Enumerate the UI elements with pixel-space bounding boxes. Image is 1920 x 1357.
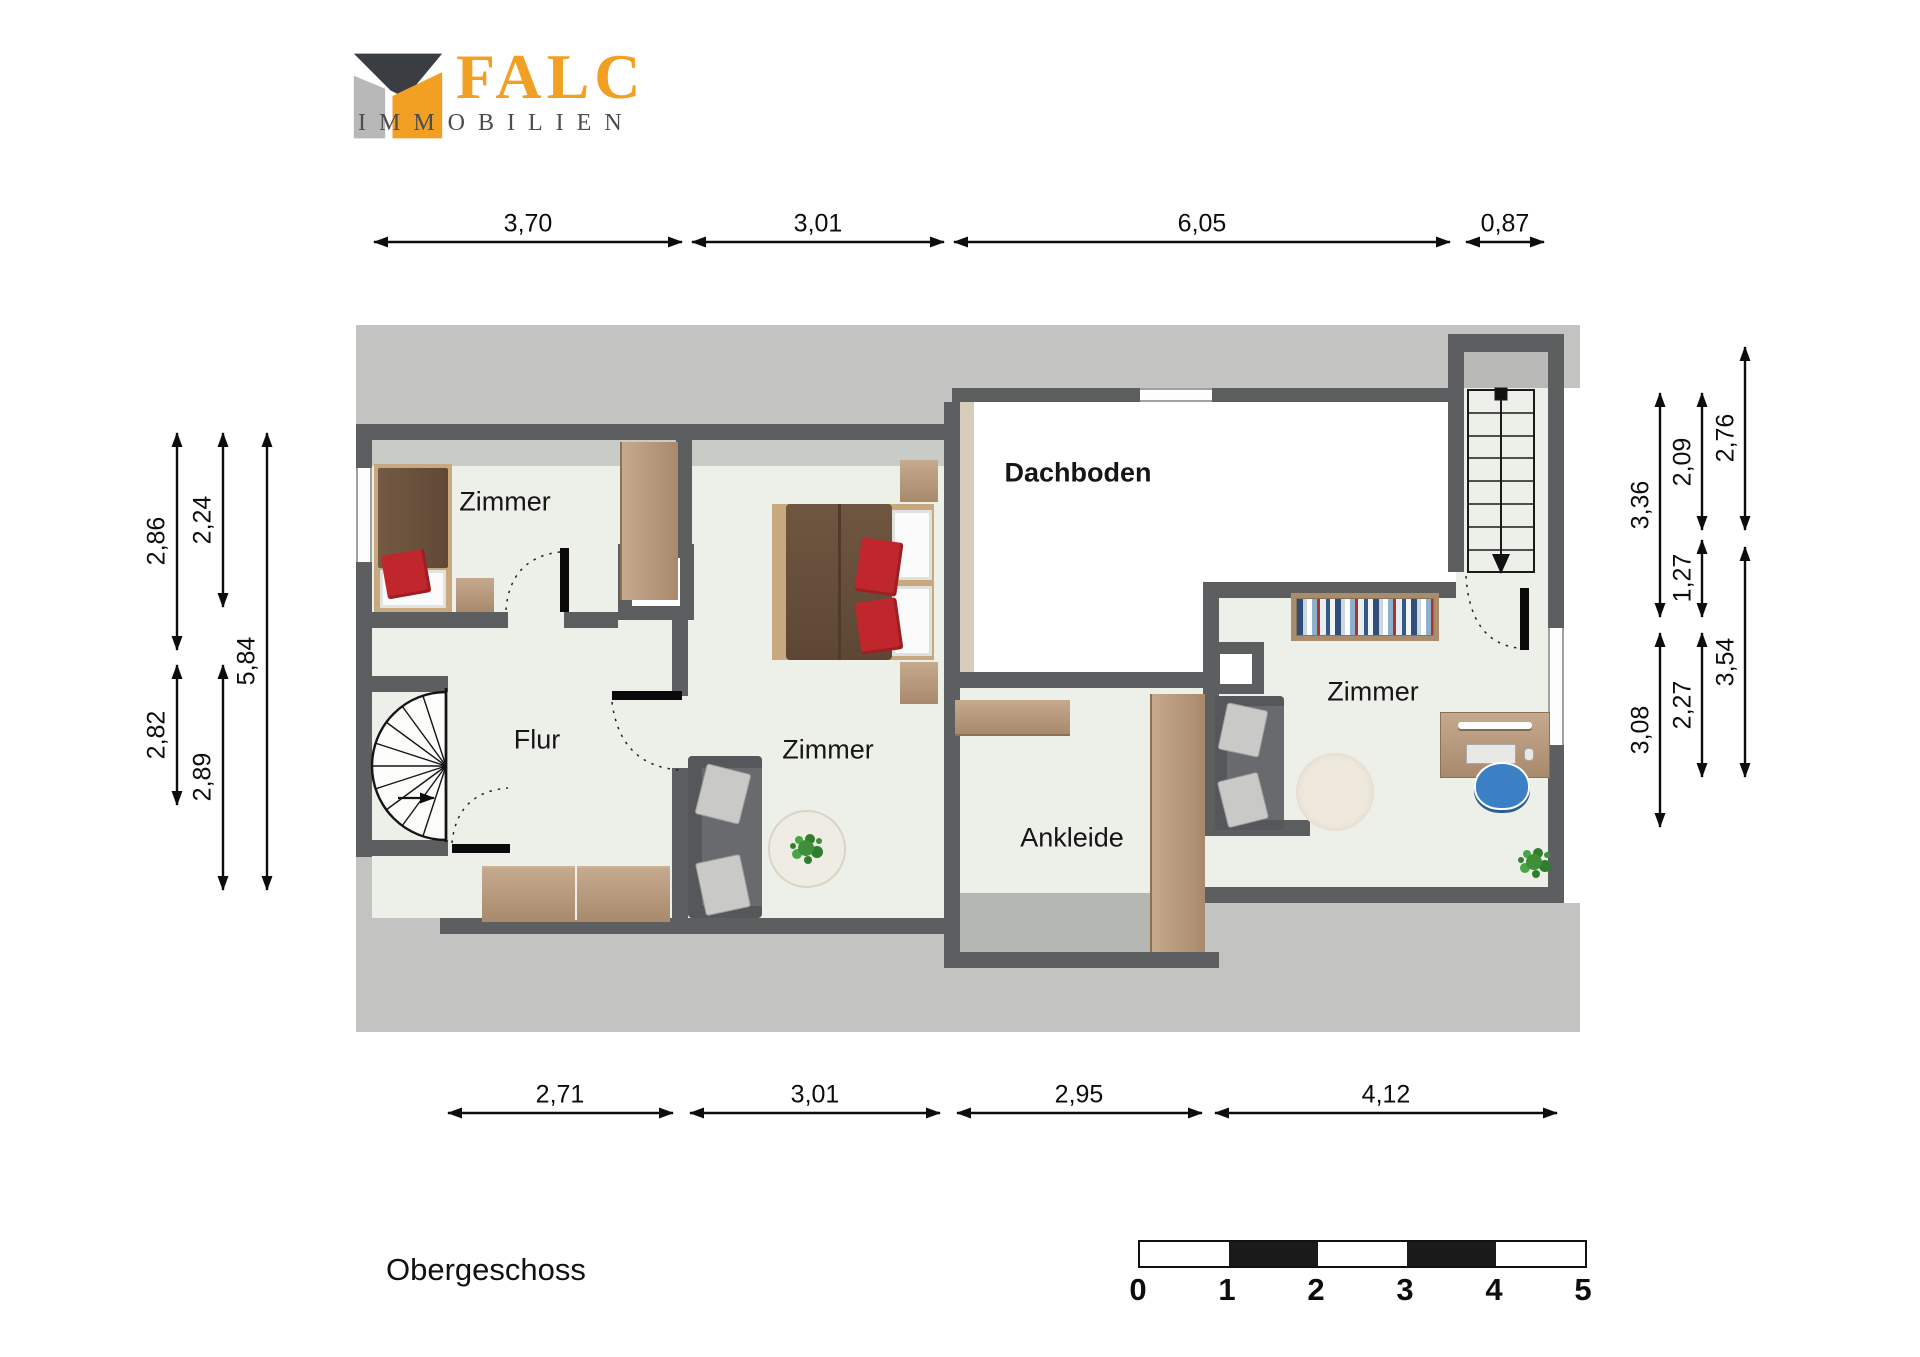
dimension-arrows (177, 242, 1745, 1113)
dim-left-2: 2,24 (189, 496, 218, 545)
dim-left-1: 2,86 (143, 517, 172, 566)
dim-right-6: 3,08 (1627, 706, 1656, 755)
scale-segment-4 (1407, 1242, 1496, 1266)
dim-left-3: 5,84 (233, 637, 262, 686)
dim-left-4: 2,82 (143, 711, 172, 760)
scale-bar (1138, 1240, 1587, 1268)
dim-top-1: 3,70 (504, 210, 553, 239)
dim-left-5: 2,89 (189, 753, 218, 802)
dim-right-3: 2,76 (1712, 414, 1741, 463)
scale-segment-3 (1318, 1242, 1407, 1266)
scale-segment-1 (1140, 1242, 1229, 1266)
scale-label-3: 3 (1396, 1272, 1413, 1308)
dim-right-4: 1,27 (1669, 554, 1698, 603)
dim-right-7: 2,27 (1669, 681, 1698, 730)
scale-label-2: 2 (1307, 1272, 1324, 1308)
dim-bottom-4: 4,12 (1362, 1081, 1411, 1110)
dim-right-1: 3,36 (1627, 481, 1656, 530)
scale-label-0: 0 (1129, 1272, 1146, 1308)
plan-title: Obergeschoss (386, 1252, 586, 1288)
floorplan-page: { "brand": { "name": "FALC", "subtitle":… (0, 0, 1920, 1357)
dim-top-4: 0,87 (1481, 210, 1530, 239)
scale-segment-2 (1229, 1242, 1318, 1266)
dim-right-5: 3,54 (1712, 638, 1741, 687)
plan-overlay (0, 0, 1920, 1357)
straight-staircase (1468, 388, 1534, 574)
dim-bottom-1: 2,71 (536, 1081, 585, 1110)
door-leaves (452, 548, 1529, 853)
door-leaf-bedroom1 (560, 548, 569, 612)
scale-segment-5 (1496, 1242, 1585, 1266)
door-leaf-stair-enclosure (452, 844, 510, 853)
spiral-staircase (372, 688, 446, 842)
scale-label-5: 5 (1574, 1272, 1591, 1308)
dim-top-2: 3,01 (794, 210, 843, 239)
dim-bottom-3: 2,95 (1055, 1081, 1104, 1110)
door-leaf-office (1520, 588, 1529, 650)
scale-label-4: 4 (1485, 1272, 1502, 1308)
dim-top-3: 6,05 (1178, 210, 1227, 239)
door-leaf-bedroom2 (612, 691, 682, 700)
dim-bottom-2: 3,01 (791, 1081, 840, 1110)
dim-right-2: 2,09 (1669, 438, 1698, 487)
door-swing-arcs (452, 552, 1518, 843)
scale-label-1: 1 (1218, 1272, 1235, 1308)
